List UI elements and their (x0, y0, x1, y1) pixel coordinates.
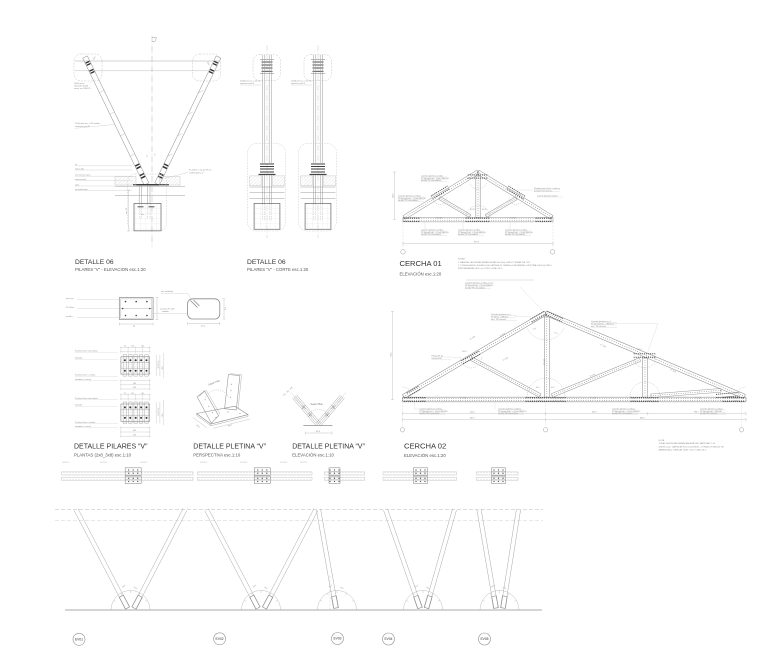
svg-text:CERCHA 01: CERCHA 01 (400, 259, 442, 268)
svg-text:EV03: EV03 (333, 637, 341, 641)
svg-text:PL pletina 10mm conf taladros: PL pletina 10mm conf taladros (75, 350, 98, 353)
svg-text:(arandelas + tuercas): (arandelas + tuercas) (75, 378, 91, 381)
svg-text:ELEVACIÓN esc.1:10: ELEVACIÓN esc.1:10 (292, 453, 334, 458)
svg-text:PRETINA VARIAS s/E 10 m/u TODO: PRETINA VARIAS s/E 10 m/u TODO s/CALCULO… (458, 267, 503, 270)
svg-text:s/ DET. pletina 'V': s/ DET. pletina 'V' (189, 171, 204, 174)
svg-text:10.9: 10.9 (141, 393, 144, 395)
svg-text:PERSPECTIVA esc.1:10: PERSPECTIVA esc.1:10 (193, 453, 241, 458)
svg-text:EV01: EV01 (75, 638, 83, 642)
svg-text:recrecido horm.: recrecido horm. (75, 188, 89, 191)
svg-text:288.1: 288.1 (694, 412, 699, 414)
svg-text:34.3: 34.3 (162, 366, 164, 369)
svg-text:3(1,5T,1.5): 3(1,5T,1.5) (158, 408, 160, 416)
svg-text:3.5: 3.5 (124, 393, 126, 395)
svg-text:2. TODA LA UNION: JUNTA 10x110: 2. TODA LA UNION: JUNTA 10x110 CARTELA P… (458, 264, 552, 267)
svg-text:UNION s/calc. CARTELAS PL10 2u: UNION s/calc. CARTELAS PL10 2ud./UNION +… (659, 445, 724, 448)
svg-text:3(1,5T,1.5): 3(1,5T,1.5) (158, 360, 160, 368)
svg-text:soldada: soldada (162, 311, 170, 313)
svg-text:38.4: 38.4 (133, 430, 136, 432)
svg-text:37 X28: 37 X28 (590, 397, 596, 399)
svg-text:105.3: 105.3 (637, 349, 642, 351)
svg-text:CERCHA 02: CERCHA 02 (404, 442, 446, 451)
svg-text:EV05: EV05 (480, 637, 488, 641)
svg-text:2x8 PL10: 2x8 PL10 (240, 462, 247, 464)
svg-text:PL-10mm, 2 ud. por PL-12: PL-10mm, 2 ud. por PL-12 (189, 169, 211, 172)
svg-text:PL-12mm: PL-12mm (66, 307, 75, 309)
svg-text:174.2: 174.2 (391, 352, 393, 357)
svg-text:var. 50: var. 50 (126, 207, 128, 214)
svg-text:847.5: 847.5 (470, 418, 475, 420)
svg-text:NOTA:: NOTA: (659, 439, 665, 442)
svg-text:10.9: 10.9 (131, 393, 134, 395)
svg-text:autoclave nivel IV: autoclave nivel IV (75, 125, 91, 128)
svg-text:PL pletina 10mm + tornillos: PL pletina 10mm + tornillos (75, 374, 95, 377)
svg-text:43.8: 43.8 (133, 434, 136, 436)
svg-text:1. MADERA: LAS PIEZAS SERAN PI: 1. MADERA: LAS PIEZAS SERAN PIEZAS 2x8 (… (458, 261, 531, 264)
svg-text:37 X28: 37 X28 (510, 218, 516, 220)
svg-text:DETALLE 06: DETALLE 06 (75, 259, 114, 266)
svg-text:2x8 PL10: 2x8 PL10 (200, 462, 207, 464)
svg-text:anc.: anc. (141, 214, 145, 216)
svg-text:2x8 PL10: 2x8 PL10 (140, 462, 147, 464)
svg-text:NOTAS:: NOTAS: (458, 258, 466, 261)
svg-text:ELEVACIÓN esc.1:20: ELEVACIÓN esc.1:20 (404, 453, 446, 458)
svg-text:tapa sup.: tapa sup. (66, 297, 74, 300)
svg-text:EV02: EV02 (216, 637, 224, 641)
svg-text:10.9: 10.9 (141, 346, 144, 348)
svg-text:PILARES “V” - CORTE esc.1:20: PILARES “V” - CORTE esc.1:20 (247, 267, 309, 272)
svg-text:tornillos: tornillos (66, 315, 73, 318)
svg-text:61.93: 61.93 (470, 209, 475, 211)
svg-text:3.5: 3.5 (124, 346, 126, 348)
svg-text:red. soldadura: red. soldadura (161, 290, 174, 293)
svg-text:tirafondos: tirafondos (75, 404, 83, 407)
svg-text:(arandelas + tuercas): (arandelas + tuercas) (75, 425, 91, 428)
svg-text:DETALLE PLETINA “V”: DETALLE PLETINA “V” (292, 444, 365, 451)
svg-text:DETALLE PLETINA “V”: DETALLE PLETINA “V” (193, 444, 266, 451)
svg-text:43.8: 43.8 (133, 387, 136, 389)
svg-text:EV04: EV04 (384, 637, 392, 641)
svg-text:2(2x8) pino nac. C-24 tratado: 2(2x8) pino nac. C-24 tratado (75, 122, 100, 125)
svg-text:37 X28: 37 X28 (695, 397, 701, 399)
svg-text:tirafondos: tirafondos (75, 357, 83, 360)
svg-text:DETALLE PILARES “V”: DETALLE PILARES “V” (74, 444, 148, 451)
svg-text:PILARES “V” - ELEVACION esc.1:: PILARES “V” - ELEVACION esc.1:20 (75, 267, 146, 272)
svg-text:PLANTAS (2x8_3x8) esc.1:10: PLANTAS (2x8_3x8) esc.1:10 (74, 453, 132, 458)
svg-text:ELEVACIÓN esc.1:20: ELEVACIÓN esc.1:20 (400, 272, 442, 277)
svg-text:2x8 PL10: 2x8 PL10 (300, 462, 307, 464)
svg-text:ARANDELAS y TUERCAS s/DIN. TOD: ARANDELAS y TUERCAS s/DIN. TODO s/CALCUL… (659, 449, 707, 452)
svg-text:61.9: 61.9 (551, 387, 555, 389)
svg-text:e=10mm PL s/det: e=10mm PL s/det (160, 308, 175, 311)
svg-text:autoclave nivel IV: autoclave nivel IV (240, 82, 255, 85)
svg-text:300.2: 300.2 (592, 412, 597, 414)
svg-text:arand. est. DIN-125: arand. est. DIN-125 (74, 87, 91, 90)
svg-text:DETALLE 06: DETALLE 06 (247, 259, 286, 266)
svg-text:tuerca alta: tuerca alta (75, 167, 85, 170)
svg-text:105.3: 105.3 (462, 351, 467, 353)
svg-text:38.4: 38.4 (133, 383, 136, 385)
svg-text:mortero nivel.: mortero nivel. (75, 178, 87, 181)
svg-text:PL pletina 10mm conf taladros: PL pletina 10mm conf taladros (75, 397, 98, 400)
svg-text:37 X28: 37 X28 (460, 397, 466, 399)
svg-text:10.9: 10.9 (131, 346, 134, 348)
svg-text:PL pletina 10mm + tornillos: PL pletina 10mm + tornillos (75, 421, 95, 424)
svg-text:100.2: 100.2 (393, 193, 395, 198)
svg-text:2x8 PL10: 2x8 PL10 (100, 462, 107, 464)
svg-text:2x8 PL10: 2x8 PL10 (62, 462, 69, 464)
svg-text:37 X28: 37 X28 (544, 359, 546, 365)
svg-text:2x8 PL10: 2x8 PL10 (280, 462, 287, 464)
svg-text:61.93: 61.93 (482, 209, 487, 211)
svg-text:61.9: 61.9 (536, 387, 540, 389)
svg-text:848.2: 848.2 (640, 418, 645, 420)
svg-text:37 X28: 37 X28 (436, 218, 442, 220)
svg-text:34.3: 34.3 (162, 413, 164, 416)
svg-text:599.5: 599.5 (474, 241, 480, 243)
svg-text:ancl. barras espec.: ancl. barras espec. (75, 174, 91, 177)
svg-text:Según Plan: Según Plan (311, 403, 324, 406)
svg-text:TODAS LAS PIEZAS SERAN MADERA: TODAS LAS PIEZAS SERAN MADERA PINO NACIO… (659, 442, 716, 445)
svg-text:420.5: 420.5 (470, 412, 475, 414)
svg-text:autoclave nivel IV: autoclave nivel IV (291, 82, 306, 85)
